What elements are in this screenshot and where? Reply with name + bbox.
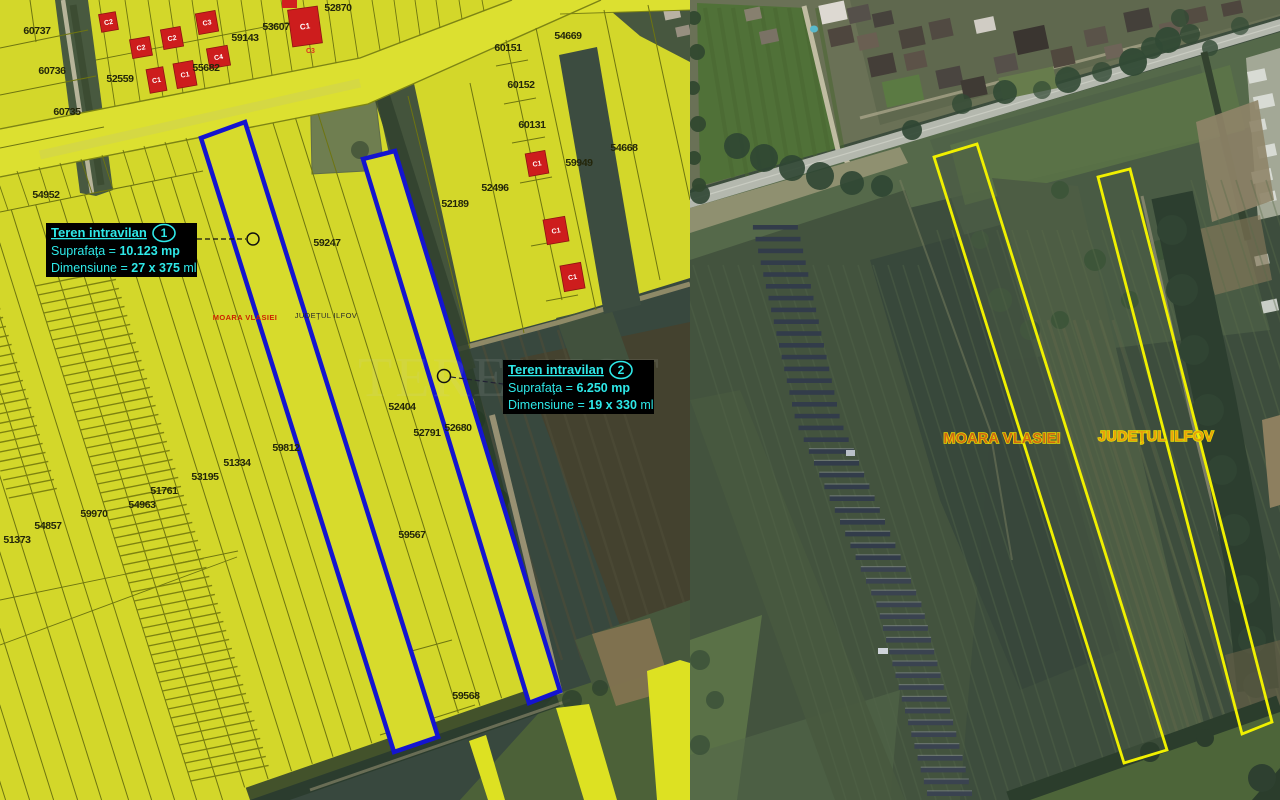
svg-text:Suprafaţa = 10.123 mp: Suprafaţa = 10.123 mp [51, 244, 180, 258]
svg-text:59247: 59247 [313, 237, 341, 249]
svg-text:60152: 60152 [507, 79, 535, 91]
svg-text:Dimensiune = 27 x 375 ml: Dimensiune = 27 x 375 ml [51, 261, 197, 275]
svg-text:52496: 52496 [481, 182, 509, 194]
svg-text:54963: 54963 [128, 499, 156, 511]
svg-text:C3: C3 [306, 48, 315, 55]
svg-text:Teren intravilan: Teren intravilan [508, 362, 604, 377]
svg-text:52559: 52559 [106, 73, 134, 85]
svg-text:53607: 53607 [262, 21, 290, 33]
svg-text:Teren intravilan: Teren intravilan [51, 225, 147, 240]
svg-text:51373: 51373 [3, 534, 31, 546]
svg-text:54669: 54669 [554, 30, 582, 42]
svg-text:MOARA VLASIEI: MOARA VLASIEI [213, 313, 278, 322]
svg-text:54668: 54668 [610, 142, 638, 154]
svg-text:59949: 59949 [565, 157, 593, 169]
svg-text:55682: 55682 [192, 62, 220, 74]
svg-text:59567: 59567 [398, 529, 426, 541]
svg-text:60736: 60736 [38, 65, 66, 77]
svg-text:54952: 54952 [32, 189, 60, 201]
svg-text:JUDEŢUL ILFOV: JUDEŢUL ILFOV [295, 311, 357, 320]
svg-text:1: 1 [161, 226, 168, 240]
svg-text:C1: C1 [299, 21, 311, 31]
svg-text:51334: 51334 [223, 457, 251, 469]
svg-text:59143: 59143 [231, 32, 259, 44]
svg-text:59970: 59970 [80, 508, 108, 520]
svg-text:52870: 52870 [324, 2, 352, 14]
svg-text:MOARA VLASIEI: MOARA VLASIEI [943, 431, 1060, 447]
svg-text:Dimensiune = 19 x 330 ml: Dimensiune = 19 x 330 ml [508, 398, 654, 412]
svg-text:59812: 59812 [272, 442, 300, 454]
svg-text:54857: 54857 [34, 520, 62, 532]
svg-text:2: 2 [618, 363, 625, 377]
svg-text:51761: 51761 [150, 485, 178, 497]
svg-text:52791: 52791 [413, 427, 441, 439]
svg-text:59568: 59568 [452, 690, 480, 702]
svg-text:60735: 60735 [53, 106, 81, 118]
svg-text:60737: 60737 [23, 25, 51, 37]
svg-text:60151: 60151 [494, 42, 522, 54]
svg-text:JUDEŢUL ILFOV: JUDEŢUL ILFOV [1098, 429, 1214, 445]
svg-text:52189: 52189 [441, 198, 469, 210]
svg-text:52680: 52680 [444, 422, 472, 434]
svg-text:Suprafaţa = 6.250 mp: Suprafaţa = 6.250 mp [508, 381, 630, 395]
svg-text:53195: 53195 [191, 471, 219, 483]
svg-text:60131: 60131 [518, 119, 546, 131]
